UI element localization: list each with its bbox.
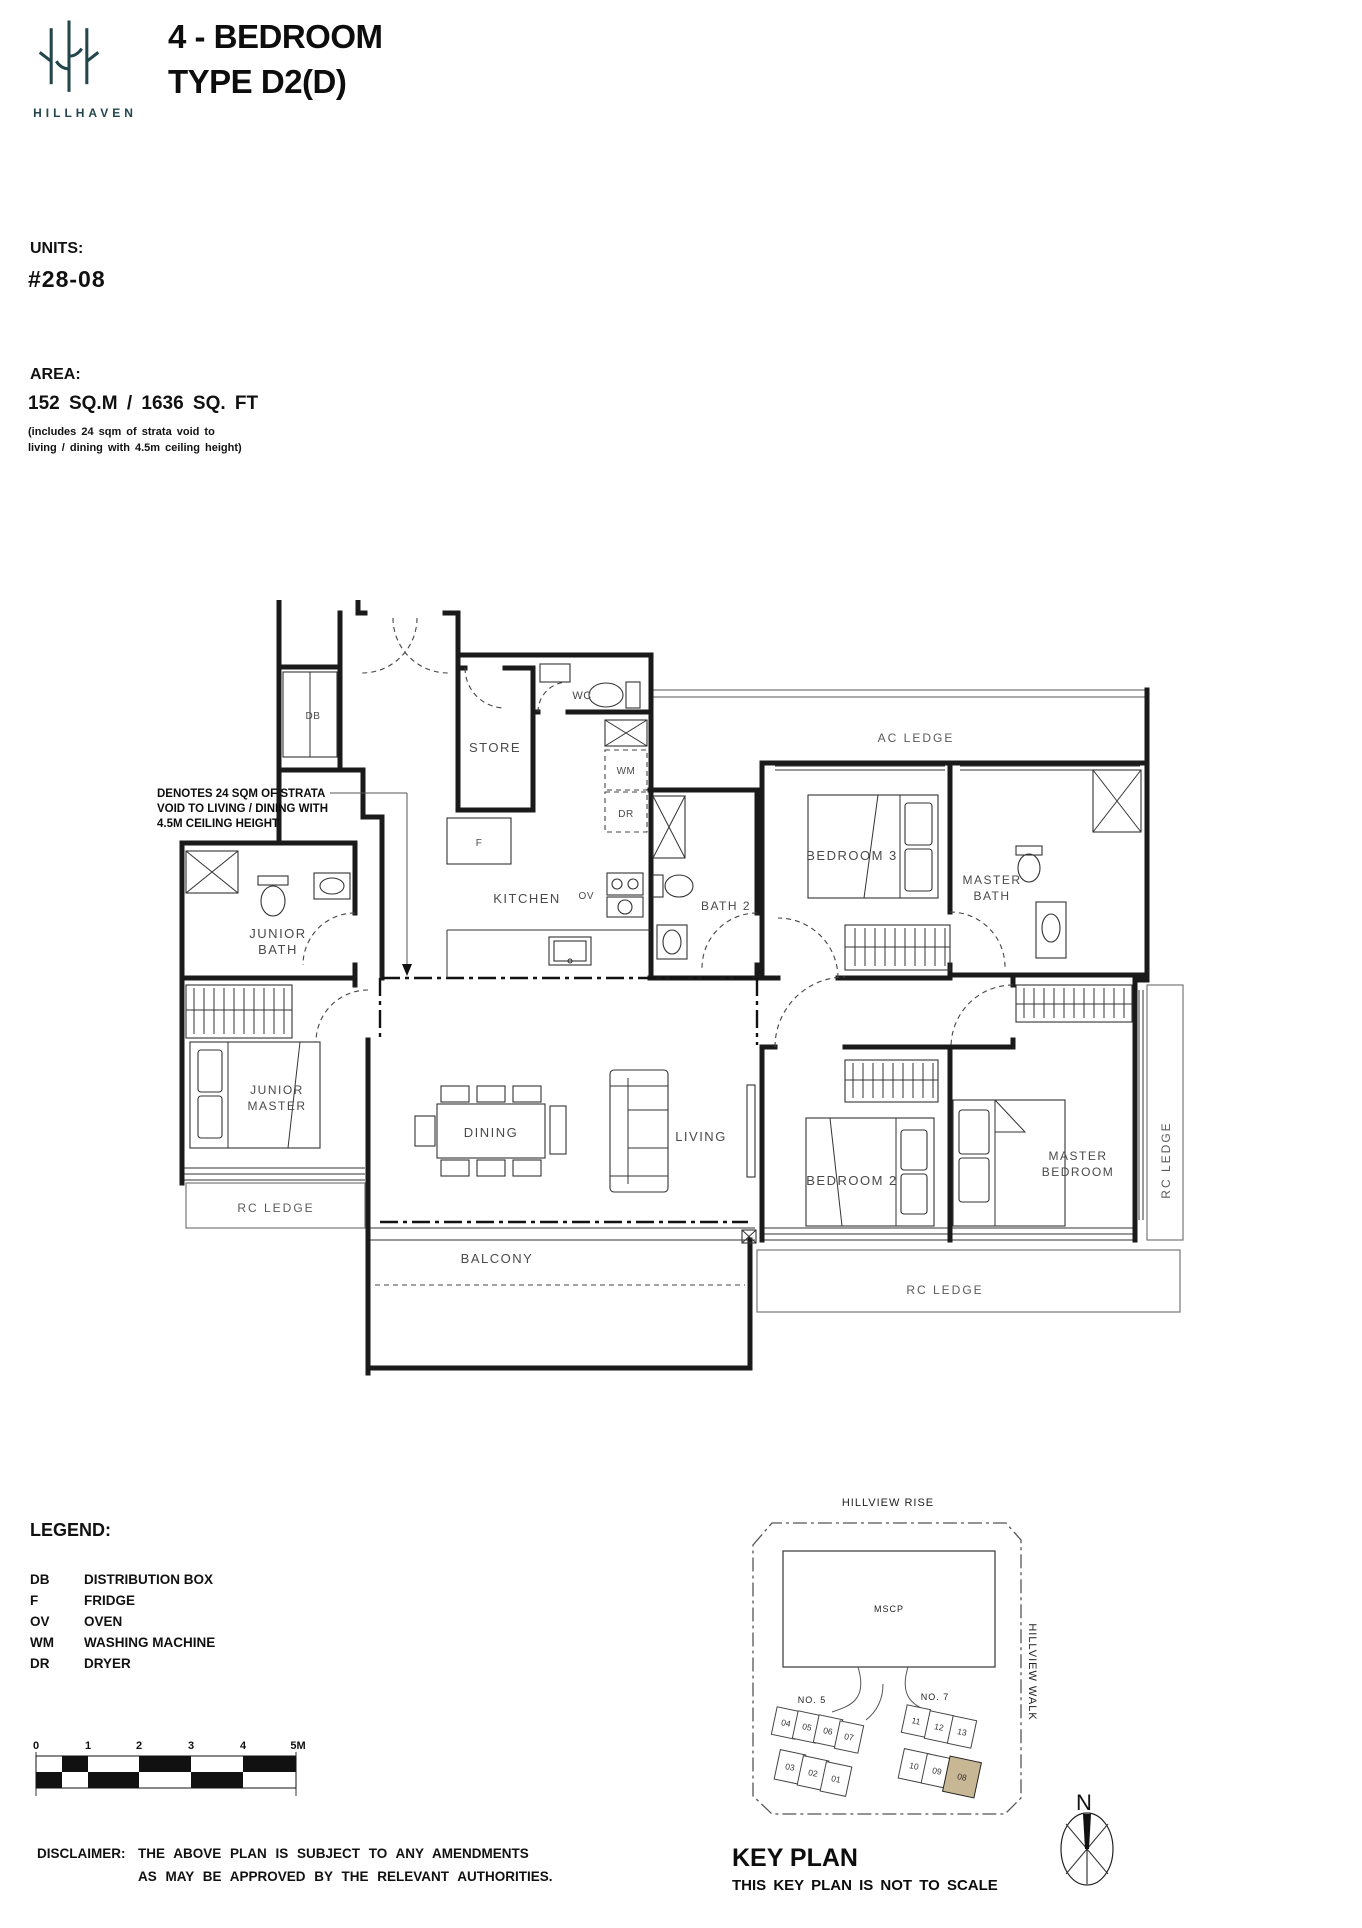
scale-4: 4 [240, 1740, 247, 1752]
balcony-label: BALCONY [461, 1251, 534, 1266]
junior-master-furniture: JUNIOR MASTER [186, 985, 320, 1148]
scale-bar: 0 1 2 3 4 5M [20, 1730, 340, 1810]
ledge-outlines [186, 690, 1183, 1312]
utility-appliances: WM DR [605, 720, 647, 832]
legend-desc: OVEN [84, 1614, 122, 1629]
rc-ledge-right-label: RC LEDGE [1159, 1121, 1173, 1198]
scale-1: 1 [85, 1740, 91, 1752]
plan-title: 4 - BEDROOM TYPE D2(D) [168, 14, 383, 104]
area-note-line1: (includes 24 sqm of strata void to [28, 424, 242, 440]
walls [182, 600, 1147, 1373]
bedroom2-furniture: BEDROOM 2 [806, 1060, 938, 1226]
bath2-fixtures: BATH 2 [653, 796, 751, 959]
key-plan-subtitle: THIS KEY PLAN IS NOT TO SCALE [732, 1877, 998, 1894]
hillhaven-logo: HILLHAVEN [30, 18, 140, 120]
legend-desc: DISTRIBUTION BOX [84, 1572, 213, 1587]
legend-row: FFRIDGE [30, 1590, 215, 1611]
junior-bath-label2: BATH [258, 942, 298, 957]
north-label: N [1076, 1790, 1092, 1815]
disclaimer: DISCLAIMER: THE ABOVE PLAN IS SUBJECT TO… [37, 1842, 553, 1888]
north-arrow: N [1061, 1790, 1113, 1885]
kitchen-fixtures: F OV KITCHEN [447, 818, 651, 978]
window-glazing [182, 766, 1143, 1240]
logo-wordmark: HILLHAVEN [30, 106, 140, 120]
oven-label: OV [579, 891, 594, 902]
unit-number: #28-08 [28, 266, 106, 293]
units-label: UNITS: [30, 240, 83, 258]
wm-label: WM [617, 766, 636, 777]
block5-units: 04 05 06 07 03 02 01 [771, 1707, 863, 1797]
area-value: 152 SQ.M / 1636 SQ. FT [28, 393, 258, 415]
plan-title-line1: 4 - BEDROOM [168, 14, 383, 59]
legend-row: DBDISTRIBUTION BOX [30, 1569, 215, 1590]
bath2-label: BATH 2 [701, 899, 751, 913]
master-bath-fixtures: MASTER BATH [962, 770, 1141, 958]
legend-abbr: WM [30, 1632, 84, 1653]
master-bedroom-label2: BEDROOM [1042, 1165, 1115, 1179]
legend: LEGEND: DBDISTRIBUTION BOX FFRIDGE OVOVE… [30, 1520, 215, 1674]
kitchen-label: KITCHEN [493, 891, 561, 906]
floorplan-page: HILLHAVEN 4 - BEDROOM TYPE D2(D) UNITS: … [0, 0, 1362, 1928]
legend-desc: DRYER [84, 1656, 131, 1671]
block5-label: NO. 5 [798, 1695, 827, 1705]
junior-master-label2: MASTER [247, 1099, 306, 1113]
dr-label: DR [618, 809, 633, 820]
disclaimer-line1: THE ABOVE PLAN IS SUBJECT TO ANY AMENDME… [138, 1842, 553, 1865]
legend-abbr: F [30, 1590, 84, 1611]
block7-units: 11 12 13 10 09 08 [898, 1705, 981, 1798]
store-label: STORE [469, 740, 521, 755]
plan-title-line2: TYPE D2(D) [168, 59, 383, 104]
legend-abbr: DB [30, 1569, 84, 1590]
living-furniture: LIVING [550, 1070, 755, 1192]
wc-fixtures: WC [540, 664, 640, 708]
master-bath-label1: MASTER [962, 873, 1021, 887]
legend-desc: WASHING MACHINE [84, 1635, 215, 1650]
annotation-line3: 4.5M CEILING HEIGHT [157, 818, 279, 830]
area-note-line2: living / dining with 4.5m ceiling height… [28, 440, 242, 456]
scale-0: 0 [33, 1740, 39, 1752]
balcony-detail: BALCONY [461, 1230, 756, 1266]
annotation-line1: DENOTES 24 SQM OF STRATA [157, 788, 325, 800]
junior-bath-fixtures: JUNIOR BATH [186, 851, 350, 957]
bedroom3-label: BEDROOM 3 [806, 848, 898, 863]
legend-row: OVOVEN [30, 1611, 215, 1632]
junior-master-label1: JUNIOR [250, 1083, 304, 1097]
scale-bar-blocks [36, 1756, 296, 1788]
rc-ledge-left-label: RC LEDGE [237, 1201, 314, 1215]
dining-furniture: DINING [415, 1086, 545, 1176]
ac-ledge-label: AC LEDGE [878, 731, 955, 745]
strata-void-boundary [380, 978, 757, 1222]
db-closet: DB [283, 672, 337, 757]
door-swing-arcs [303, 618, 1013, 1047]
db-label: DB [306, 711, 321, 722]
legend-title: LEGEND: [30, 1520, 215, 1541]
area-label: AREA: [30, 366, 81, 384]
legend-row: DRDRYER [30, 1653, 215, 1674]
disclaimer-line2: AS MAY BE APPROVED BY THE RELEVANT AUTHO… [138, 1865, 553, 1888]
floor-plan-drawing: DB WC WM DR F OV [150, 600, 1200, 1390]
junior-bath-label1: JUNIOR [249, 926, 306, 941]
leader-arrow [402, 964, 412, 976]
annotation-line2: VOID TO LIVING / DINING WITH [157, 803, 328, 815]
legend-abbr: DR [30, 1653, 84, 1674]
rc-ledge-bottom-label: RC LEDGE [906, 1283, 983, 1297]
master-bedroom-furniture: MASTER BEDROOM [953, 985, 1132, 1226]
key-plan-title: KEY PLAN [732, 1844, 858, 1872]
key-plan: HILLVIEW RISE HILLVIEW WALK MSCP NO. 5 N… [625, 1478, 1360, 1926]
living-label: LIVING [675, 1129, 727, 1144]
mscp-label: MSCP [874, 1604, 904, 1614]
legend-abbr: OV [30, 1611, 84, 1632]
block7-label: NO. 7 [921, 1692, 950, 1702]
road-top-label: HILLVIEW RISE [842, 1497, 934, 1509]
legend-desc: FRIDGE [84, 1593, 135, 1608]
scale-3: 3 [188, 1740, 194, 1752]
dining-label: DINING [464, 1125, 519, 1140]
master-bath-label2: BATH [973, 889, 1010, 903]
bedroom2-label: BEDROOM 2 [806, 1173, 898, 1188]
scale-2: 2 [136, 1740, 142, 1752]
logo-trees-icon [30, 18, 108, 102]
scale-5m: 5M [290, 1740, 305, 1752]
wc-label: WC [572, 690, 591, 702]
road-right-label: HILLVIEW WALK [1026, 1623, 1038, 1720]
fridge-label: F [476, 838, 483, 849]
master-bedroom-label1: MASTER [1048, 1149, 1107, 1163]
area-note: (includes 24 sqm of strata void to livin… [28, 424, 242, 456]
legend-row: WMWASHING MACHINE [30, 1632, 215, 1653]
unit-08-highlighted: 08 [943, 1756, 982, 1798]
disclaimer-label: DISCLAIMER: [37, 1842, 126, 1865]
